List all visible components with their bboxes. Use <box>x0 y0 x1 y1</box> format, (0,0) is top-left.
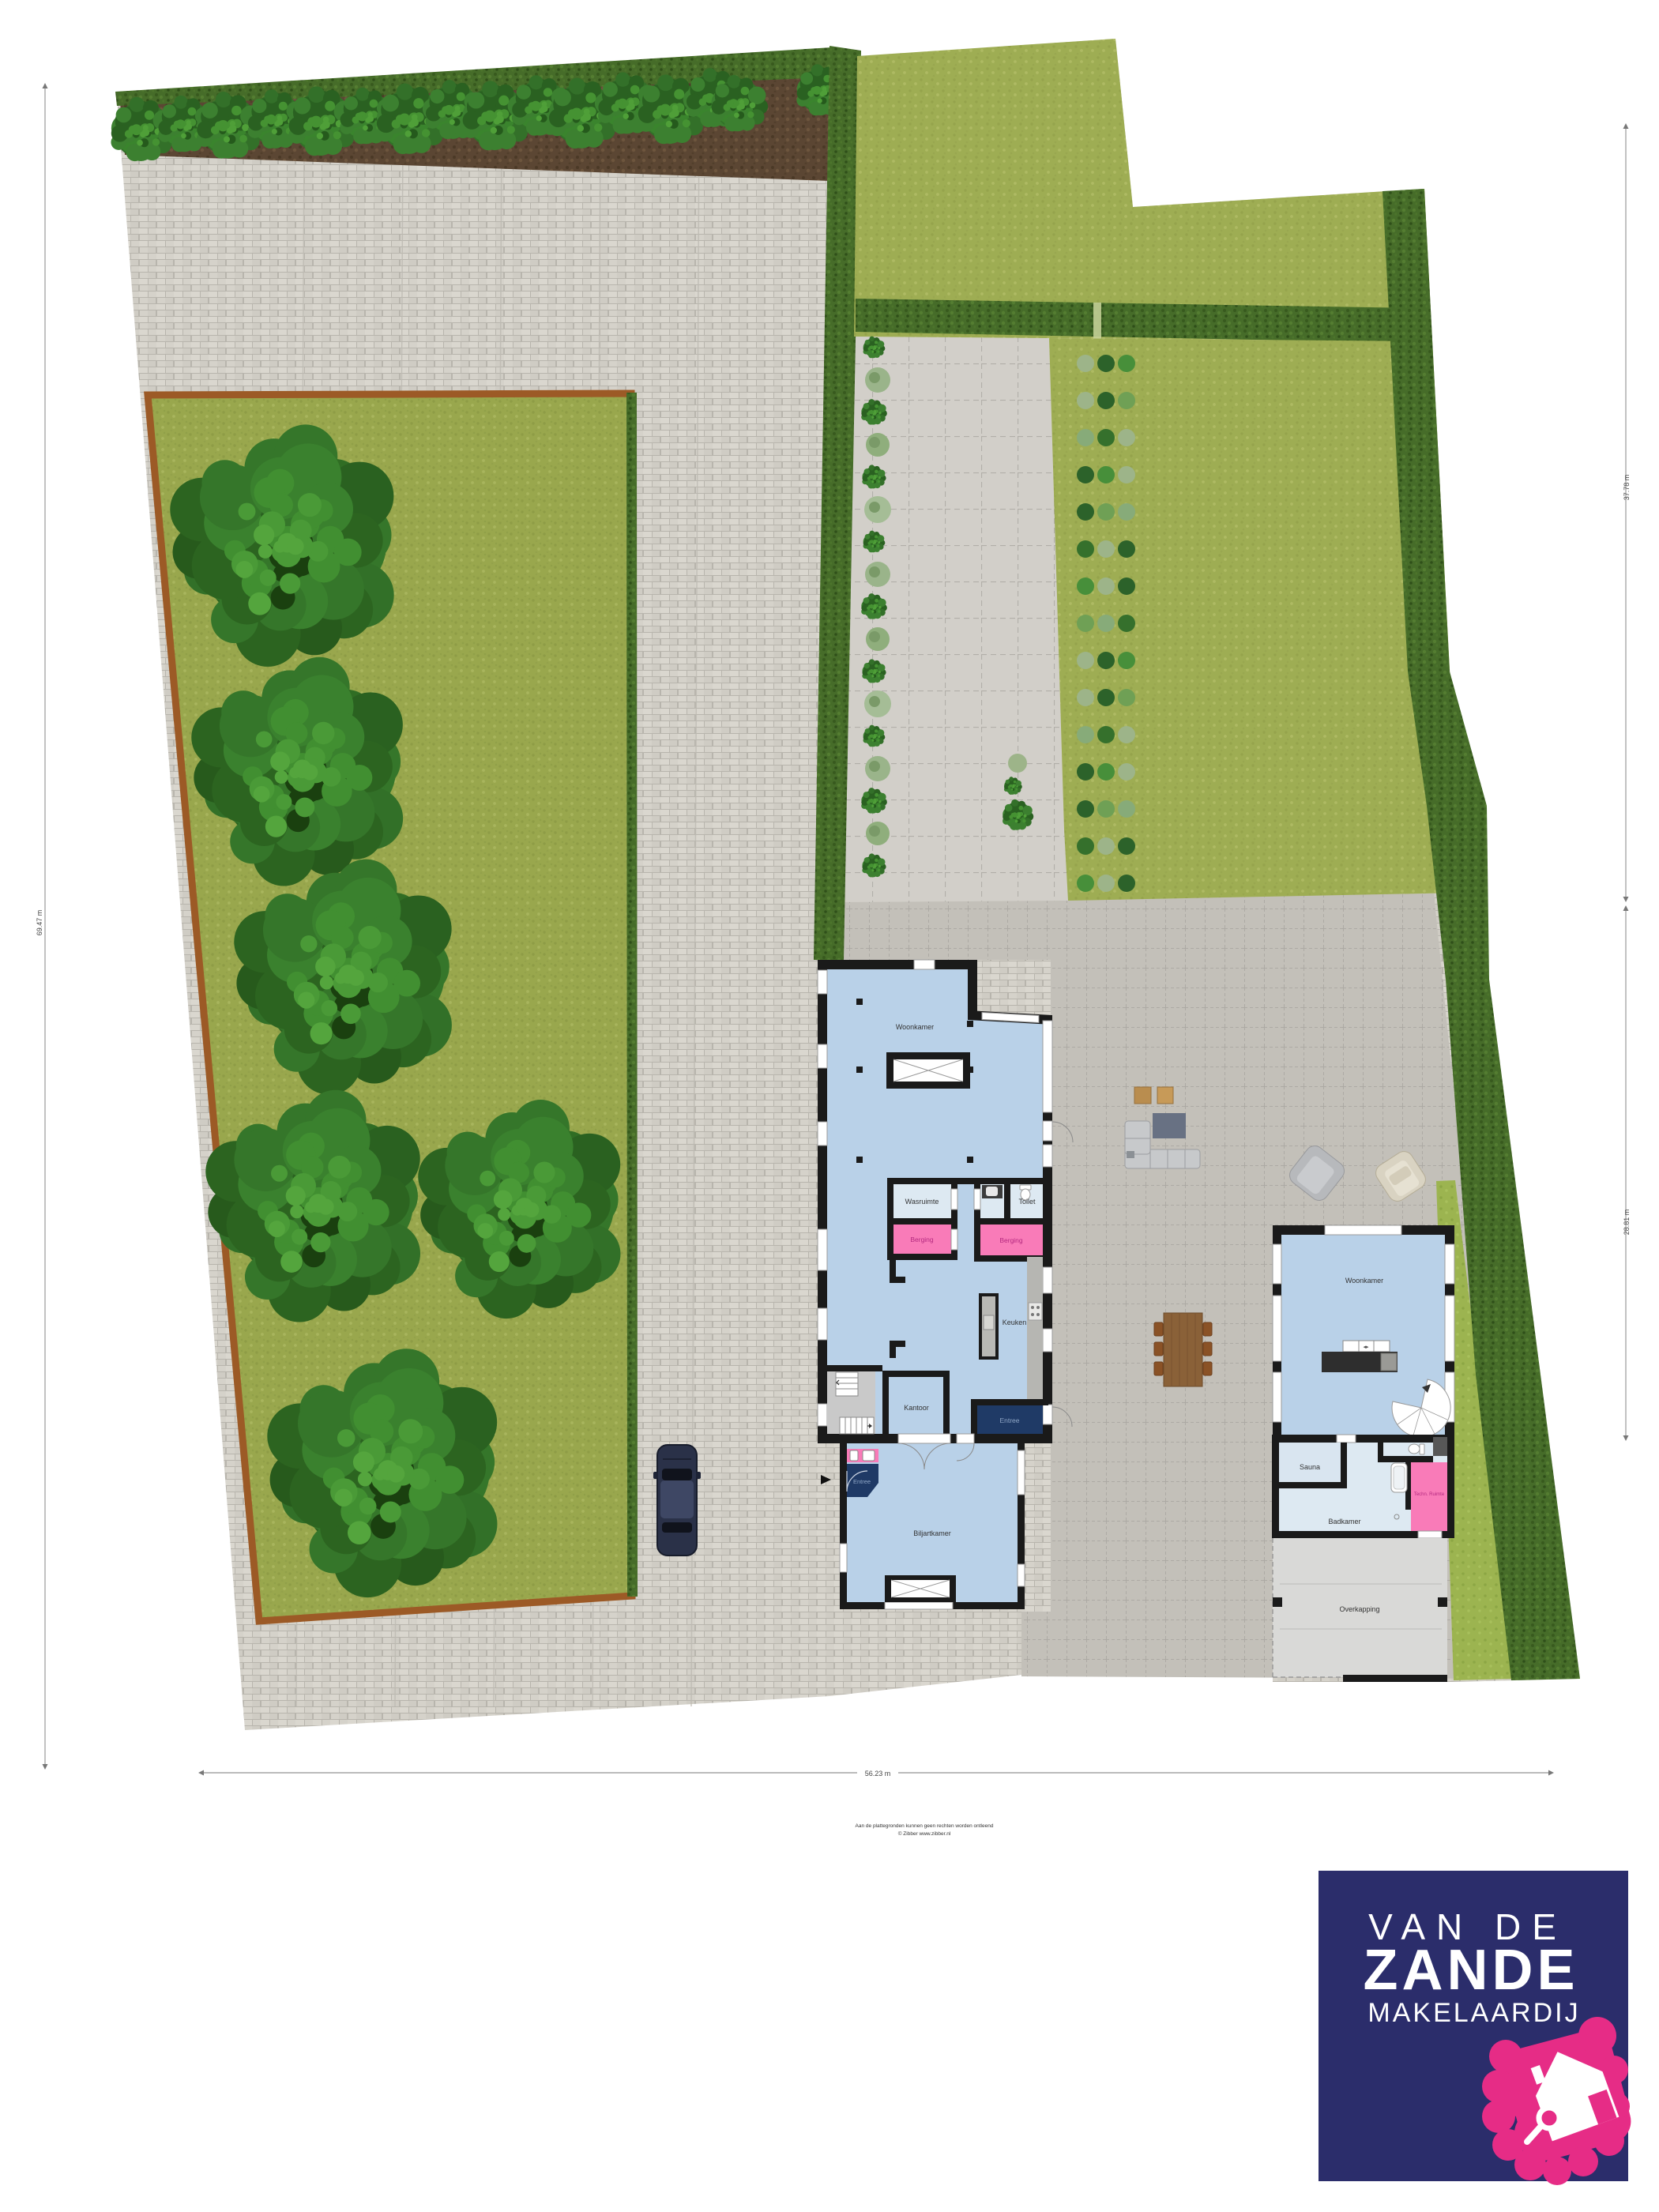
svg-text:56.23 m: 56.23 m <box>865 1770 891 1777</box>
svg-text:Overkapping: Overkapping <box>1339 1605 1379 1613</box>
svg-text:Berging: Berging <box>999 1236 1023 1244</box>
svg-text:ZANDE: ZANDE <box>1364 1939 1579 2002</box>
svg-text:Biljartkamer: Biljartkamer <box>913 1529 951 1537</box>
svg-text:◂▸: ◂▸ <box>1363 1345 1369 1350</box>
svg-text:Berging: Berging <box>910 1236 934 1243</box>
svg-text:Badkamer: Badkamer <box>1328 1518 1360 1525</box>
svg-text:Woonkamer: Woonkamer <box>1345 1277 1383 1285</box>
svg-text:28.81 m: 28.81 m <box>1623 1209 1631 1236</box>
svg-text:© Zibber www.zibber.nl: © Zibber www.zibber.nl <box>898 1830 951 1837</box>
svg-text:69.47 m: 69.47 m <box>36 910 43 936</box>
svg-text:Keuken: Keuken <box>1003 1319 1027 1326</box>
svg-text:Kantoor: Kantoor <box>904 1404 929 1412</box>
svg-text:MAKELAARDIJ: MAKELAARDIJ <box>1367 1998 1580 2028</box>
svg-text:Entree: Entree <box>853 1478 871 1485</box>
svg-text:Aan de plattegronden kunnen ge: Aan de plattegronden kunnen geen rechten… <box>856 1823 994 1829</box>
svg-text:Toilet: Toilet <box>1018 1198 1036 1206</box>
svg-text:Entree: Entree <box>999 1416 1019 1424</box>
svg-text:37.78 m: 37.78 m <box>1623 475 1631 501</box>
svg-text:Wasruimte: Wasruimte <box>905 1198 939 1206</box>
svg-text:Techn. Ruimte: Techn. Ruimte <box>1414 1492 1445 1497</box>
svg-text:Woonkamer: Woonkamer <box>896 1023 934 1031</box>
svg-text:Sauna: Sauna <box>1300 1463 1320 1471</box>
